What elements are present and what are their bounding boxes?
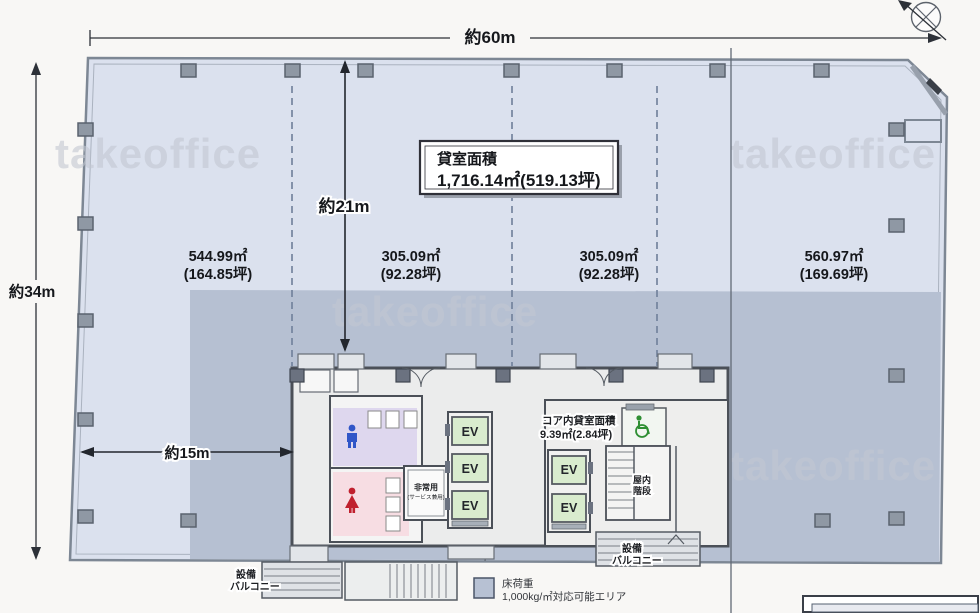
stair-label-line1: 屋内 [633,474,651,485]
core-rent-area-value: 9.39㎡(2.84坪) [540,427,612,441]
zone-1-tsubo: (164.85坪) [184,266,253,283]
stair-label-line2: 階段 [633,485,652,496]
rent-area-title: 貸室面積 [437,150,498,168]
balcony-left-label-line2: バルコニー [230,581,280,593]
emergency-elevator: 非常用 (サービス兼用) [404,466,448,520]
elevator-label: EV [561,501,578,515]
watermark-text: takeoffice [730,442,936,489]
watermark-text: takeoffice [55,130,261,177]
elevator-label: EV [462,462,479,476]
floor-plan-page: takeoffice takeoffice takeoffice takeoff… [0,0,980,613]
emergency-ev-label: 非常用 [414,482,438,492]
rent-area-value: 1,716.14㎡(519.13坪) [437,170,601,190]
core-rent-area-label: コア内貸室面積 [542,414,616,427]
exterior-stair [345,562,457,600]
legend-title: 床荷重 [502,577,534,590]
legend-swatch [474,578,494,598]
legend-description: 1,000kg/㎡対応可能エリア [502,590,626,603]
elevator-label: EV [462,499,479,513]
rent-area-box: 貸室面積 1,716.14㎡(519.13坪) [420,141,622,198]
dimension-width-label: 約60m [464,27,515,47]
watermark-text: takeoffice [332,288,538,335]
equipment-balcony-right: 設備 バルコニー [596,532,700,567]
core-right-block: コア内貸室面積 9.39㎡(2.84坪) EV [540,400,728,546]
dimension-height-label: 約34m [9,282,56,301]
zone-3-area: 305.09㎡ [580,247,639,265]
elevator-label: EV [561,463,578,477]
title-block-partial [803,596,978,612]
balcony-right-label-line2: バルコニー [612,555,662,567]
zone-3-tsubo: (92.28坪) [579,266,640,283]
dimension-core-offset-label: 約21m [318,196,369,216]
zone-4-tsubo: (169.69坪) [800,266,869,283]
floor-plan-drawing: takeoffice takeoffice takeoffice takeoff… [0,0,980,613]
zone-2-area: 305.09㎡ [382,247,441,265]
elevator-bank-right: EV EV [548,450,593,532]
zone-1-area: 544.99㎡ [189,247,248,265]
building-core: 非常用 (サービス兼用) EV EV EV コア内貸室面積 9.39㎡(2.84… [290,354,728,562]
dimension-west-span-label: 約15m [164,444,209,462]
emergency-ev-sublabel: (サービス兼用) [407,493,444,501]
accessible-toilet [622,404,666,446]
wheelchair-icon-head [636,415,641,420]
elevator-bank-left: EV EV EV [445,412,492,528]
zone-2-tsubo: (92.28坪) [381,266,442,283]
balcony-left-label-line1: 設備 [236,568,256,581]
elevator-label: EV [462,425,479,439]
zone-4-area: 560.97㎡ [805,247,864,265]
balcony-right-label-line1: 設備 [622,542,642,555]
